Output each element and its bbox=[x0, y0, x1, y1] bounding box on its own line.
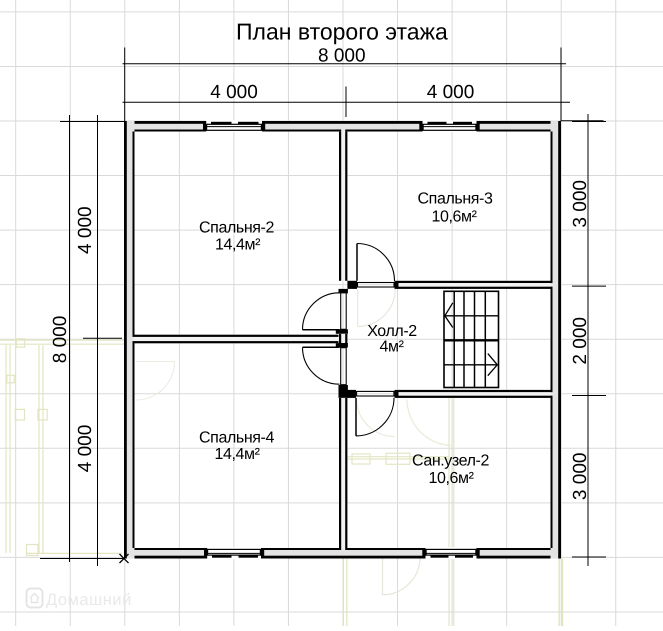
svg-text:4 000: 4 000 bbox=[75, 206, 96, 254]
svg-text:Спальня-3: Спальня-3 bbox=[418, 191, 493, 208]
svg-text:Домашний: Домашний bbox=[46, 591, 132, 609]
svg-text:3 000: 3 000 bbox=[570, 453, 591, 501]
svg-text:10,6м²: 10,6м² bbox=[431, 209, 477, 226]
svg-text:Спальня-4: Спальня-4 bbox=[199, 429, 274, 446]
svg-text:10,6м²: 10,6м² bbox=[428, 470, 474, 487]
svg-text:4м²: 4м² bbox=[379, 339, 404, 356]
svg-text:4 000: 4 000 bbox=[427, 82, 475, 103]
svg-text:Спальня-2: Спальня-2 bbox=[199, 220, 274, 237]
svg-text:2 000: 2 000 bbox=[570, 317, 591, 365]
svg-text:4 000: 4 000 bbox=[75, 425, 96, 473]
svg-text:8 000: 8 000 bbox=[318, 46, 366, 67]
svg-text:14,4м²: 14,4м² bbox=[215, 237, 261, 254]
svg-text:14,4м²: 14,4м² bbox=[214, 446, 260, 463]
svg-text:План второго этажа: План второго этажа bbox=[236, 18, 448, 44]
svg-text:8 000: 8 000 bbox=[50, 316, 71, 364]
svg-text:Холл-2: Холл-2 bbox=[367, 323, 417, 340]
svg-text:Сан.узел-2: Сан.узел-2 bbox=[412, 452, 490, 469]
svg-text:4 000: 4 000 bbox=[210, 82, 258, 103]
svg-text:3 000: 3 000 bbox=[570, 180, 591, 228]
